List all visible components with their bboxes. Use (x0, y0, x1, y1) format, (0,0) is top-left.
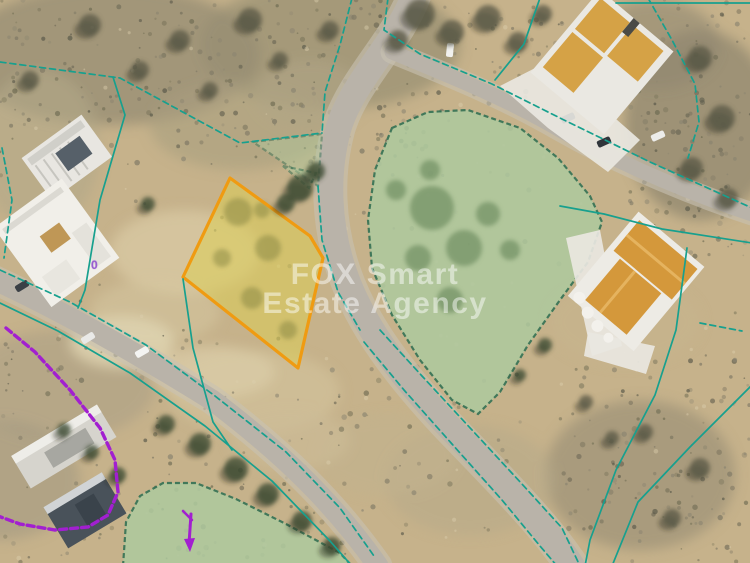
texture-dot (317, 54, 322, 59)
texture-dot (458, 103, 462, 107)
texture-dot (736, 9, 741, 14)
texture-dot (177, 80, 181, 84)
texture-dot (447, 481, 452, 486)
texture-dot (688, 513, 692, 517)
texture-dot (39, 103, 42, 106)
texture-dot (137, 97, 141, 101)
texture-dot (424, 91, 428, 95)
texture-dot (452, 518, 456, 522)
texture-dot (576, 454, 581, 459)
texture-dot (190, 31, 194, 35)
texture-dot (232, 52, 237, 57)
texture-dot (351, 15, 356, 20)
texture-dot (744, 501, 748, 505)
texture-dot (695, 406, 698, 409)
texture-dot (11, 358, 13, 360)
texture-dot (182, 329, 185, 332)
texture-dot (655, 149, 658, 152)
texture-dot (45, 391, 50, 396)
texture-dot (180, 99, 184, 103)
scrub-bush (202, 82, 218, 98)
texture-dot (289, 11, 293, 15)
texture-dot (575, 368, 578, 371)
texture-dot (11, 541, 16, 546)
texture-dot (574, 435, 576, 437)
texture-dot (22, 390, 24, 392)
texture-dot (119, 28, 122, 31)
vegetation-patch (476, 202, 500, 226)
texture-dot (612, 463, 615, 466)
texture-dot (25, 36, 30, 41)
texture-dot (248, 93, 253, 98)
texture-dot (683, 147, 688, 152)
texture-dot (99, 533, 102, 536)
texture-dot (98, 537, 101, 540)
texture-dot (664, 122, 666, 124)
texture-dot (645, 127, 648, 130)
texture-dot (690, 452, 692, 454)
texture-dot (221, 123, 224, 126)
texture-dot (732, 351, 735, 354)
texture-dot (689, 80, 692, 83)
texture-dot (81, 96, 84, 99)
scrub-bush (440, 20, 464, 44)
texture-dot (397, 102, 401, 106)
texture-dot (694, 522, 697, 525)
texture-dot (1, 97, 6, 102)
texture-dot (233, 111, 238, 116)
texture-dot (355, 213, 357, 215)
texture-dot (162, 21, 167, 26)
texture-dot (116, 4, 121, 9)
texture-dot (688, 358, 693, 363)
texture-dot (618, 447, 620, 449)
texture-dot (211, 485, 214, 488)
texture-dot (271, 118, 273, 120)
tree (292, 511, 312, 531)
texture-dot (11, 76, 15, 80)
texture-dot (697, 559, 699, 561)
texture-dot (364, 390, 369, 395)
texture-dot (500, 448, 504, 452)
texture-dot (532, 5, 536, 9)
texture-dot (743, 37, 745, 39)
texture-dot (311, 87, 314, 90)
texture-dot (671, 129, 676, 134)
texture-dot (705, 354, 707, 356)
texture-dot (712, 543, 715, 546)
texture-dot (8, 373, 11, 376)
texture-dot (517, 56, 519, 58)
tree (189, 433, 211, 455)
texture-dot (612, 367, 617, 372)
texture-dot (733, 157, 737, 161)
texture-dot (621, 389, 625, 393)
texture-dot (676, 7, 680, 11)
texture-dot (693, 214, 697, 218)
texture-dot (377, 105, 383, 111)
texture-dot (692, 516, 694, 518)
texture-dot (706, 476, 709, 479)
texture-dot (729, 375, 733, 379)
texture-dot (518, 420, 521, 423)
texture-dot (719, 399, 724, 404)
texture-dot (282, 482, 286, 486)
texture-dot (665, 488, 669, 492)
texture-dot (168, 454, 173, 459)
texture-dot (307, 531, 310, 534)
scrub-bush (690, 458, 710, 478)
texture-dot (493, 70, 496, 73)
vegetation-patch (213, 249, 231, 267)
texture-dot (702, 240, 704, 242)
texture-dot (638, 539, 642, 543)
texture-dot (643, 119, 649, 125)
texture-dot (288, 439, 291, 442)
texture-dot (37, 8, 41, 12)
texture-dot (730, 486, 735, 491)
texture-dot (198, 340, 202, 344)
texture-dot (326, 460, 330, 464)
texture-dot (560, 382, 563, 385)
texture-dot (703, 445, 707, 449)
texture-dot (370, 367, 374, 371)
texture-dot (140, 315, 144, 319)
texture-dot (18, 436, 22, 440)
texture-dot (45, 117, 49, 121)
tree (57, 423, 71, 437)
texture-dot (719, 479, 725, 485)
texture-dot (338, 444, 340, 446)
texture-dot (381, 113, 386, 118)
texture-dot (305, 506, 309, 510)
texture-dot (391, 120, 393, 122)
map-canvas (0, 0, 750, 563)
texture-dot (271, 170, 273, 172)
texture-dot (162, 88, 167, 93)
texture-dot (536, 52, 541, 57)
texture-dot (342, 482, 346, 486)
texture-dot (344, 553, 346, 555)
texture-dot (71, 66, 74, 69)
texture-dot (686, 113, 690, 117)
texture-dot (733, 145, 735, 147)
texture-dot (468, 12, 470, 14)
tree (277, 194, 295, 212)
texture-dot (189, 47, 193, 51)
texture-dot (677, 474, 681, 478)
texture-dot (636, 394, 638, 396)
texture-dot (656, 81, 658, 83)
texture-dot (401, 532, 404, 535)
texture-dot (22, 112, 25, 115)
texture-dot (406, 485, 410, 489)
texture-dot (168, 87, 173, 92)
texture-dot (162, 335, 164, 337)
texture-dot (75, 379, 77, 381)
texture-dot (127, 163, 129, 165)
texture-dot (717, 438, 719, 440)
texture-dot (181, 156, 186, 161)
texture-dot (243, 125, 248, 130)
texture-dot (18, 28, 22, 32)
texture-dot (1, 414, 5, 418)
texture-dot (169, 81, 171, 83)
texture-dot (23, 123, 26, 126)
scrub-bush (405, 0, 435, 29)
texture-dot (55, 111, 60, 116)
texture-dot (254, 156, 257, 159)
texture-dot (455, 468, 458, 471)
texture-dot (88, 110, 91, 113)
texture-dot (690, 523, 692, 525)
texture-dot (361, 509, 364, 512)
texture-dot (156, 12, 159, 15)
texture-dot (639, 530, 643, 534)
texture-dot (9, 124, 13, 128)
texture-dot (380, 133, 382, 135)
texture-dot (640, 187, 644, 191)
texture-dot (96, 44, 98, 46)
texture-dot (677, 506, 681, 510)
texture-dot (622, 431, 627, 436)
texture-dot (355, 424, 360, 429)
texture-dot (7, 383, 9, 385)
texture-dot (582, 527, 585, 530)
texture-dot (568, 511, 572, 515)
texture-dot (670, 436, 674, 440)
texture-dot (401, 109, 405, 113)
texture-dot (454, 530, 456, 532)
texture-dot (58, 365, 63, 370)
texture-dot (679, 470, 683, 474)
texture-dot (484, 527, 486, 529)
texture-dot (320, 422, 323, 425)
texture-dot (641, 115, 643, 117)
texture-dot (290, 28, 295, 33)
texture-dot (177, 440, 180, 443)
texture-dot (103, 86, 107, 90)
texture-dot (511, 27, 514, 30)
texture-dot (608, 501, 611, 504)
texture-dot (189, 19, 194, 24)
texture-dot (618, 487, 620, 489)
tree (257, 483, 279, 505)
texture-dot (699, 363, 702, 366)
texture-dot (3, 535, 7, 539)
texture-dot (41, 37, 45, 41)
texture-dot (625, 480, 627, 482)
texture-dot (199, 140, 203, 144)
texture-dot (677, 500, 681, 504)
texture-dot (727, 173, 729, 175)
vegetation-patch (410, 186, 454, 230)
texture-dot (710, 175, 715, 180)
texture-dot (296, 103, 298, 105)
texture-dot (211, 163, 213, 165)
texture-dot (79, 378, 84, 383)
texture-dot (311, 130, 313, 132)
texture-dot (7, 36, 10, 39)
texture-dot (270, 101, 275, 106)
scrub-bush (238, 8, 262, 32)
texture-dot (178, 24, 180, 26)
scrub-bush (688, 46, 712, 70)
texture-dot (91, 92, 93, 94)
texture-dot (676, 129, 681, 134)
texture-dot (579, 383, 584, 388)
texture-dot (339, 427, 344, 432)
texture-dot (291, 74, 295, 78)
texture-dot (109, 95, 112, 98)
texture-dot (704, 326, 708, 330)
texture-dot (374, 146, 378, 150)
vegetation-patch (446, 230, 482, 266)
texture-dot (181, 346, 185, 350)
texture-dot (487, 528, 490, 531)
texture-dot (334, 45, 336, 47)
texture-dot (702, 422, 704, 424)
texture-dot (744, 452, 747, 455)
texture-dot (600, 519, 604, 523)
texture-dot (21, 42, 25, 46)
texture-dot (452, 401, 456, 405)
texture-dot (475, 48, 477, 50)
texture-dot (290, 102, 295, 107)
texture-dot (642, 143, 645, 146)
texture-dot (737, 522, 741, 526)
texture-dot (313, 512, 315, 514)
texture-dot (645, 199, 650, 204)
texture-dot (148, 32, 152, 36)
texture-dot (604, 472, 608, 476)
texture-dot (735, 22, 740, 27)
texture-dot (74, 481, 78, 485)
texture-dot (60, 554, 62, 556)
texture-dot (252, 380, 256, 384)
texture-dot (102, 107, 105, 110)
texture-dot (492, 61, 494, 63)
texture-dot (580, 442, 586, 448)
texture-dot (290, 505, 293, 508)
texture-dot (404, 523, 408, 527)
texture-dot (170, 0, 173, 3)
texture-dot (701, 136, 703, 138)
texture-dot (15, 71, 19, 75)
texture-dot (213, 3, 217, 7)
texture-dot (718, 148, 723, 153)
texture-dot (724, 152, 728, 156)
vegetation-patch (405, 245, 431, 271)
texture-dot (743, 377, 745, 379)
texture-dot (180, 12, 183, 15)
texture-dot (739, 136, 744, 141)
texture-dot (218, 38, 222, 42)
texture-dot (228, 79, 232, 83)
texture-dot (12, 13, 14, 15)
texture-dot (119, 110, 122, 113)
texture-dot (89, 8, 92, 11)
texture-dot (453, 52, 456, 55)
texture-dot (158, 88, 160, 90)
texture-dot (620, 394, 623, 397)
texture-dot (628, 105, 633, 110)
texture-dot (266, 113, 268, 115)
texture-dot (16, 556, 21, 561)
texture-dot (635, 497, 637, 499)
texture-dot (239, 65, 243, 69)
vegetation-patch (386, 180, 406, 200)
texture-dot (194, 121, 198, 125)
texture-dot (325, 357, 328, 360)
texture-dot (128, 31, 131, 34)
texture-dot (209, 71, 214, 76)
texture-dot (679, 120, 683, 124)
tree (307, 162, 325, 180)
texture-dot (328, 13, 331, 16)
texture-dot (152, 457, 154, 459)
texture-dot (663, 107, 668, 112)
texture-dot (698, 521, 702, 525)
texture-dot (125, 188, 127, 190)
texture-dot (312, 92, 316, 96)
texture-dot (653, 359, 658, 364)
texture-dot (143, 438, 147, 442)
texture-dot (573, 509, 577, 513)
texture-dot (159, 55, 163, 59)
texture-dot (176, 129, 180, 133)
scrub-bush (475, 5, 501, 31)
texture-dot (702, 404, 706, 408)
texture-dot (629, 190, 633, 194)
texture-dot (362, 211, 366, 215)
texture-dot (14, 109, 16, 111)
texture-dot (703, 177, 707, 181)
texture-dot (692, 504, 698, 510)
texture-dot (656, 409, 661, 414)
texture-dot (686, 389, 690, 393)
texture-dot (646, 111, 650, 115)
tree (323, 537, 341, 555)
texture-dot (224, 99, 228, 103)
texture-dot (407, 424, 412, 429)
texture-dot (406, 83, 408, 85)
texture-dot (359, 7, 362, 10)
texture-dot (393, 466, 397, 470)
texture-dot (219, 111, 224, 116)
texture-dot (699, 97, 704, 102)
texture-dot (742, 255, 744, 257)
texture-dot (11, 350, 14, 353)
texture-dot (98, 284, 101, 287)
texture-dot (746, 384, 749, 387)
texture-dot (364, 25, 368, 29)
texture-dot (722, 395, 726, 399)
texture-dot (735, 95, 739, 99)
texture-dot (311, 114, 313, 116)
texture-dot (562, 471, 566, 475)
texture-dot (654, 119, 658, 123)
texture-dot (625, 441, 629, 445)
tree (157, 415, 175, 433)
texture-dot (225, 79, 228, 82)
texture-dot (685, 394, 689, 398)
texture-dot (655, 485, 658, 488)
texture-dot (402, 449, 407, 454)
texture-dot (15, 21, 17, 23)
texture-dot (184, 338, 188, 342)
texture-dot (291, 88, 296, 93)
